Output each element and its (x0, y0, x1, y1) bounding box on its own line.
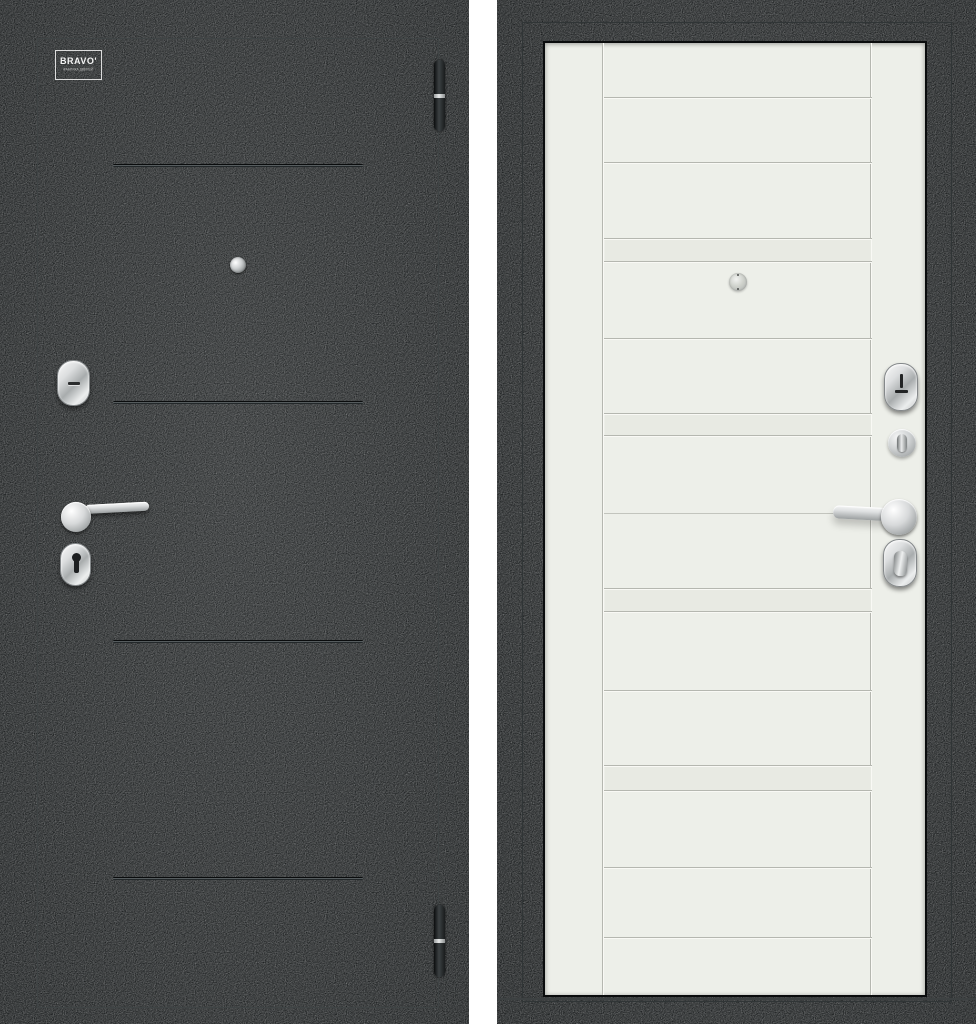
panel-groove-horizontal (604, 765, 872, 767)
decorative-groove-line (113, 401, 363, 404)
panel-groove-horizontal (604, 513, 872, 514)
door-handle-rose (881, 499, 917, 535)
key-slot-bar (895, 390, 908, 393)
peephole (729, 273, 747, 291)
panel-narrow-band (605, 590, 871, 611)
thumbturn-pill (894, 551, 907, 576)
decorative-groove-line (113, 164, 363, 167)
panel-groove-horizontal (604, 588, 872, 590)
panel-groove-horizontal (604, 413, 872, 415)
door-leaf-edge-outline (37, 38, 439, 1008)
cylinder-escutcheon (884, 363, 918, 411)
thumbturn-escutcheon (883, 539, 917, 587)
door-leaf-interior (545, 43, 925, 995)
peephole (230, 257, 246, 273)
panel-narrow-band (605, 767, 871, 790)
hinge-top (434, 60, 445, 131)
panel-groove-horizontal (604, 867, 872, 869)
hinge-band (434, 939, 445, 943)
door-sill-line (497, 998, 976, 1000)
key-slot (900, 374, 903, 388)
key-slot (68, 382, 80, 385)
brand-logo-text: BRAVO' (60, 57, 97, 66)
decorative-groove-line (113, 877, 363, 880)
door-exterior-view: BRAVO' ФАБРИКА ДВЕРЕЙ (0, 0, 469, 1024)
panel-groove-horizontal (604, 690, 872, 692)
panel-groove-vertical (602, 43, 604, 995)
decorative-groove-line (113, 640, 363, 643)
brand-logo-tagline: ФАБРИКА ДВЕРЕЙ (64, 68, 94, 71)
panel-groove-horizontal (604, 238, 872, 240)
panel-groove-horizontal (604, 937, 872, 939)
panel-groove-horizontal (604, 338, 872, 340)
panel-groove-horizontal (604, 261, 872, 263)
cylinder-escutcheon (57, 360, 90, 406)
panel-groove-horizontal (604, 162, 872, 164)
panel-groove-horizontal (604, 97, 872, 99)
thumbturn-knob (888, 429, 916, 457)
thumbturn-pill (897, 434, 907, 452)
brand-logo: BRAVO' ФАБРИКА ДВЕРЕЙ (55, 50, 102, 80)
hinge-band (434, 94, 445, 98)
panel-narrow-band (605, 415, 871, 435)
door-product-image: BRAVO' ФАБРИКА ДВЕРЕЙ (0, 0, 976, 1024)
panel-groove-horizontal (604, 435, 872, 437)
panel-groove-horizontal (604, 790, 872, 792)
panel-groove-horizontal (604, 611, 872, 613)
keyhole (72, 553, 81, 562)
door-handle-rose (61, 502, 91, 532)
keyhole-escutcheon (60, 543, 91, 586)
hinge-bottom (434, 905, 445, 977)
panel-narrow-band (605, 240, 871, 261)
door-interior-view (497, 0, 976, 1024)
